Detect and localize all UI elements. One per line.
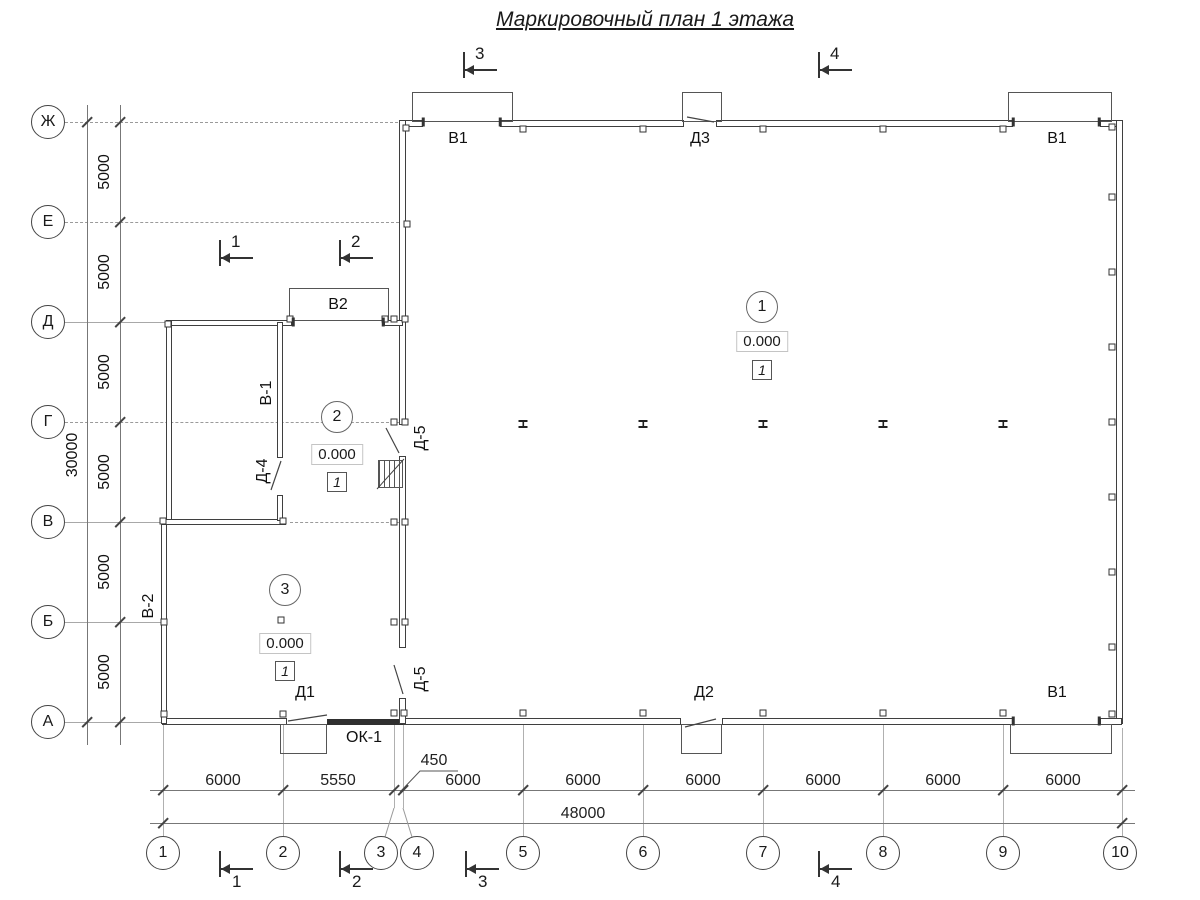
section-arrow-icon — [467, 864, 476, 874]
section-arrow-icon — [341, 864, 350, 874]
floor-plan-drawing: Маркировочный план 1 этажа — [0, 0, 1200, 900]
section-label: 1 — [232, 872, 241, 892]
dim-6000-4: 6000 — [685, 772, 721, 790]
gate-end-tick — [499, 118, 502, 127]
dim-5000-3: 5000 — [96, 354, 114, 390]
column-marker — [880, 126, 887, 133]
grid-row-circle-g: Г — [31, 405, 65, 439]
dim-5000-1: 5000 — [96, 154, 114, 190]
column-marker — [1000, 710, 1007, 717]
grid-row-circle-v: В — [31, 505, 65, 539]
mark-door-d3: Д3 — [690, 130, 710, 148]
gridline-row-b — [65, 622, 161, 623]
section-mark-4-top: 4 — [818, 52, 858, 84]
column-marker — [391, 519, 398, 526]
dim-5000-2: 5000 — [96, 254, 114, 290]
wall-right — [1116, 120, 1123, 724]
column-marker — [1109, 644, 1116, 651]
dim-total-48000: 48000 — [561, 805, 606, 823]
canopy-door-d3 — [682, 92, 722, 122]
column-marker — [880, 710, 887, 717]
grid-row-label: Д — [43, 313, 54, 331]
dim-6000-7: 6000 — [1045, 772, 1081, 790]
column-marker — [391, 710, 398, 717]
gridline-row-a — [65, 722, 161, 723]
room-2-number-circle: 2 — [321, 401, 353, 433]
grid-row-circle-zh: Ж — [31, 105, 65, 139]
wall-annex-d-1 — [166, 320, 292, 326]
column-marker — [1109, 711, 1116, 718]
drawing-title: Маркировочный план 1 этажа — [496, 8, 794, 32]
grid-col-circle-9: 9 — [986, 836, 1020, 870]
mark-door-d5-lower: Д-5 — [412, 666, 430, 691]
column-marker — [760, 126, 767, 133]
column-marker — [1109, 269, 1116, 276]
column-marker — [403, 125, 410, 132]
wall-bottom-2 — [403, 718, 681, 725]
column-marker — [280, 518, 287, 525]
room-2-elevation: 0.000 — [311, 444, 363, 465]
section-arrow-icon — [820, 864, 829, 874]
stairs — [378, 460, 403, 488]
grid-row-circle-e: Е — [31, 205, 65, 239]
ibeam-column-icon — [999, 420, 1008, 428]
grid-col-circle-10: 10 — [1103, 836, 1137, 870]
dim-offset-450: 450 — [421, 752, 448, 770]
grid-col-circle-6: 6 — [626, 836, 660, 870]
column-marker — [1000, 126, 1007, 133]
grid-col-label: 9 — [999, 844, 1008, 862]
gridline-row-v — [65, 522, 161, 523]
gridline-row-zh — [65, 122, 403, 123]
mark-gate-v1-interior: В-1 — [258, 381, 276, 406]
column-marker — [640, 710, 647, 717]
section-arrow-icon — [221, 253, 230, 263]
gridline-col-8 — [883, 724, 884, 836]
section-mark-3-top: 3 — [463, 52, 503, 84]
column-marker — [1109, 569, 1116, 576]
gridline-col-9 — [1003, 724, 1004, 836]
column-marker — [1109, 124, 1116, 131]
gate-end-tick — [422, 118, 425, 127]
grid-col-label: 4 — [413, 844, 422, 862]
wall-annex-left-upper — [166, 320, 172, 522]
gate-end-tick — [292, 318, 295, 327]
column-marker — [391, 619, 398, 626]
column-marker — [165, 321, 172, 328]
wall-bottom-1 — [162, 718, 287, 725]
mark-gate-v2: В2 — [328, 296, 348, 314]
porch-gate-v1-bottom — [1010, 724, 1112, 754]
dim-total-30000: 30000 — [64, 433, 82, 478]
grid-col-label: 6 — [639, 844, 648, 862]
section-arrow-icon — [221, 864, 230, 874]
dim-5000-5: 5000 — [96, 554, 114, 590]
section-mark-2-middle: 2 — [339, 240, 379, 272]
section-label: 4 — [830, 44, 839, 64]
column-marker — [402, 519, 409, 526]
section-arrow-icon — [465, 65, 474, 75]
grid-row-circle-b: Б — [31, 605, 65, 639]
section-mark-2-bottom: 2 — [339, 851, 379, 883]
grid-col-label: 10 — [1111, 844, 1129, 862]
grid-row-label: Г — [44, 413, 53, 431]
section-label: 3 — [478, 872, 487, 892]
column-marker — [161, 619, 168, 626]
grid-col-label: 7 — [759, 844, 768, 862]
grid-row-label: Е — [43, 213, 54, 231]
grid-col-circle-1: 1 — [146, 836, 180, 870]
ibeam-column-icon — [759, 420, 768, 428]
grid-row-label: А — [43, 713, 54, 731]
column-marker — [404, 221, 411, 228]
grid-col-label: 1 — [159, 844, 168, 862]
dim-6000-6: 6000 — [925, 772, 961, 790]
section-label: 2 — [351, 232, 360, 252]
gate-end-tick — [1098, 118, 1101, 127]
dim-6000-3: 6000 — [565, 772, 601, 790]
mark-door-d1: Д1 — [295, 684, 315, 702]
wall-bottom-3 — [722, 718, 1013, 725]
mark-door-d2: Д2 — [694, 684, 714, 702]
room-1-elevation: 0.000 — [736, 331, 788, 352]
column-marker — [280, 711, 287, 718]
column-marker — [1109, 494, 1116, 501]
mark-gate-v2-left: В-2 — [140, 594, 158, 619]
dim-5550: 5550 — [320, 772, 356, 790]
column-marker — [160, 518, 167, 525]
gate-end-tick — [1012, 717, 1015, 726]
column-marker — [401, 710, 408, 717]
column-marker — [520, 126, 527, 133]
column-marker — [520, 710, 527, 717]
gridline-col-5 — [523, 724, 524, 836]
grid-col-label: 2 — [279, 844, 288, 862]
dim-5000-6: 5000 — [96, 654, 114, 690]
window-ok1-strip — [327, 719, 403, 725]
mark-window-ok1: ОК-1 — [346, 729, 382, 747]
room-1-floor-type: 1 — [752, 360, 772, 380]
porch-door-d1 — [280, 724, 327, 754]
section-label: 2 — [352, 872, 361, 892]
room-3-number-circle: 3 — [269, 574, 301, 606]
grid-row-circle-a: А — [31, 705, 65, 739]
room-3-elevation: 0.000 — [259, 633, 311, 654]
column-marker — [391, 316, 398, 323]
column-marker — [402, 316, 409, 323]
mark-door-d4: Д-4 — [254, 458, 272, 483]
dimension-line-bottom-2 — [150, 823, 1135, 824]
ibeam-column-icon — [519, 420, 528, 428]
gridline-row-v2 — [290, 522, 399, 523]
mark-gate-v1-bottom-right: В1 — [1047, 684, 1067, 702]
room-number: 3 — [281, 581, 290, 599]
section-label: 3 — [475, 44, 484, 64]
gridline-col-6 — [643, 724, 644, 836]
gate-end-tick — [1012, 118, 1015, 127]
room-1-number-circle: 1 — [746, 291, 778, 323]
room-number: 2 — [333, 408, 342, 426]
column-marker — [391, 419, 398, 426]
canopy-gate-v1-top-right — [1008, 92, 1112, 122]
wall-interior-v1-1 — [277, 322, 283, 458]
dim-5000-4: 5000 — [96, 454, 114, 490]
grid-col-circle-5: 5 — [506, 836, 540, 870]
mark-door-d5-upper: Д-5 — [412, 425, 430, 450]
section-arrow-icon — [820, 65, 829, 75]
grid-col-circle-4: 4 — [400, 836, 434, 870]
ibeam-column-icon — [639, 420, 648, 428]
section-mark-4-bottom: 4 — [818, 851, 858, 883]
column-marker — [402, 619, 409, 626]
grid-row-circle-d: Д — [31, 305, 65, 339]
ibeam-column-icon — [879, 420, 888, 428]
wall-left-main-1 — [399, 120, 406, 425]
gridline-col-4 — [403, 724, 404, 808]
gridline-col-3 — [394, 724, 395, 808]
wall-annex-row-v — [161, 519, 286, 525]
grid-row-label: Б — [43, 613, 54, 631]
gridline-col-7 — [763, 724, 764, 836]
gridline-row-d — [65, 322, 166, 323]
column-marker — [161, 711, 168, 718]
grid-col-circle-7: 7 — [746, 836, 780, 870]
dim-6000-5: 6000 — [805, 772, 841, 790]
column-marker — [640, 126, 647, 133]
column-marker — [1109, 344, 1116, 351]
grid-col-circle-8: 8 — [866, 836, 900, 870]
section-arrow-icon — [341, 253, 350, 263]
mark-gate-v1-top-right: В1 — [1047, 130, 1067, 148]
dimension-line-left-outer — [87, 105, 88, 745]
dimension-line-left-inner — [120, 105, 121, 745]
room-3-floor-type: 1 — [275, 661, 295, 681]
grid-row-label: Ж — [41, 113, 56, 131]
dim-6000-2: 6000 — [445, 772, 481, 790]
grid-row-label: В — [43, 513, 54, 531]
section-label: 4 — [831, 872, 840, 892]
column-marker — [402, 419, 409, 426]
column-marker — [1109, 194, 1116, 201]
column-marker — [1109, 419, 1116, 426]
section-mark-1-middle: 1 — [219, 240, 259, 272]
grid-col-label: 5 — [519, 844, 528, 862]
section-mark-1-bottom: 1 — [219, 851, 259, 883]
column-marker — [760, 710, 767, 717]
gridline-row-e — [65, 222, 399, 223]
section-label: 1 — [231, 232, 240, 252]
grid-col-label: 8 — [879, 844, 888, 862]
room-number: 1 — [758, 298, 767, 316]
column-marker — [278, 617, 285, 624]
grid-col-circle-2: 2 — [266, 836, 300, 870]
wall-top-2 — [500, 120, 684, 127]
section-mark-3-bottom: 3 — [465, 851, 505, 883]
mark-gate-v1-top-left: В1 — [448, 130, 468, 148]
gate-end-tick — [382, 318, 385, 327]
porch-door-d2 — [681, 724, 722, 754]
door-leaf-and-leader-lines — [0, 0, 1200, 900]
gate-end-tick — [1098, 717, 1101, 726]
room-2-floor-type: 1 — [327, 472, 347, 492]
dim-6000-1: 6000 — [205, 772, 241, 790]
